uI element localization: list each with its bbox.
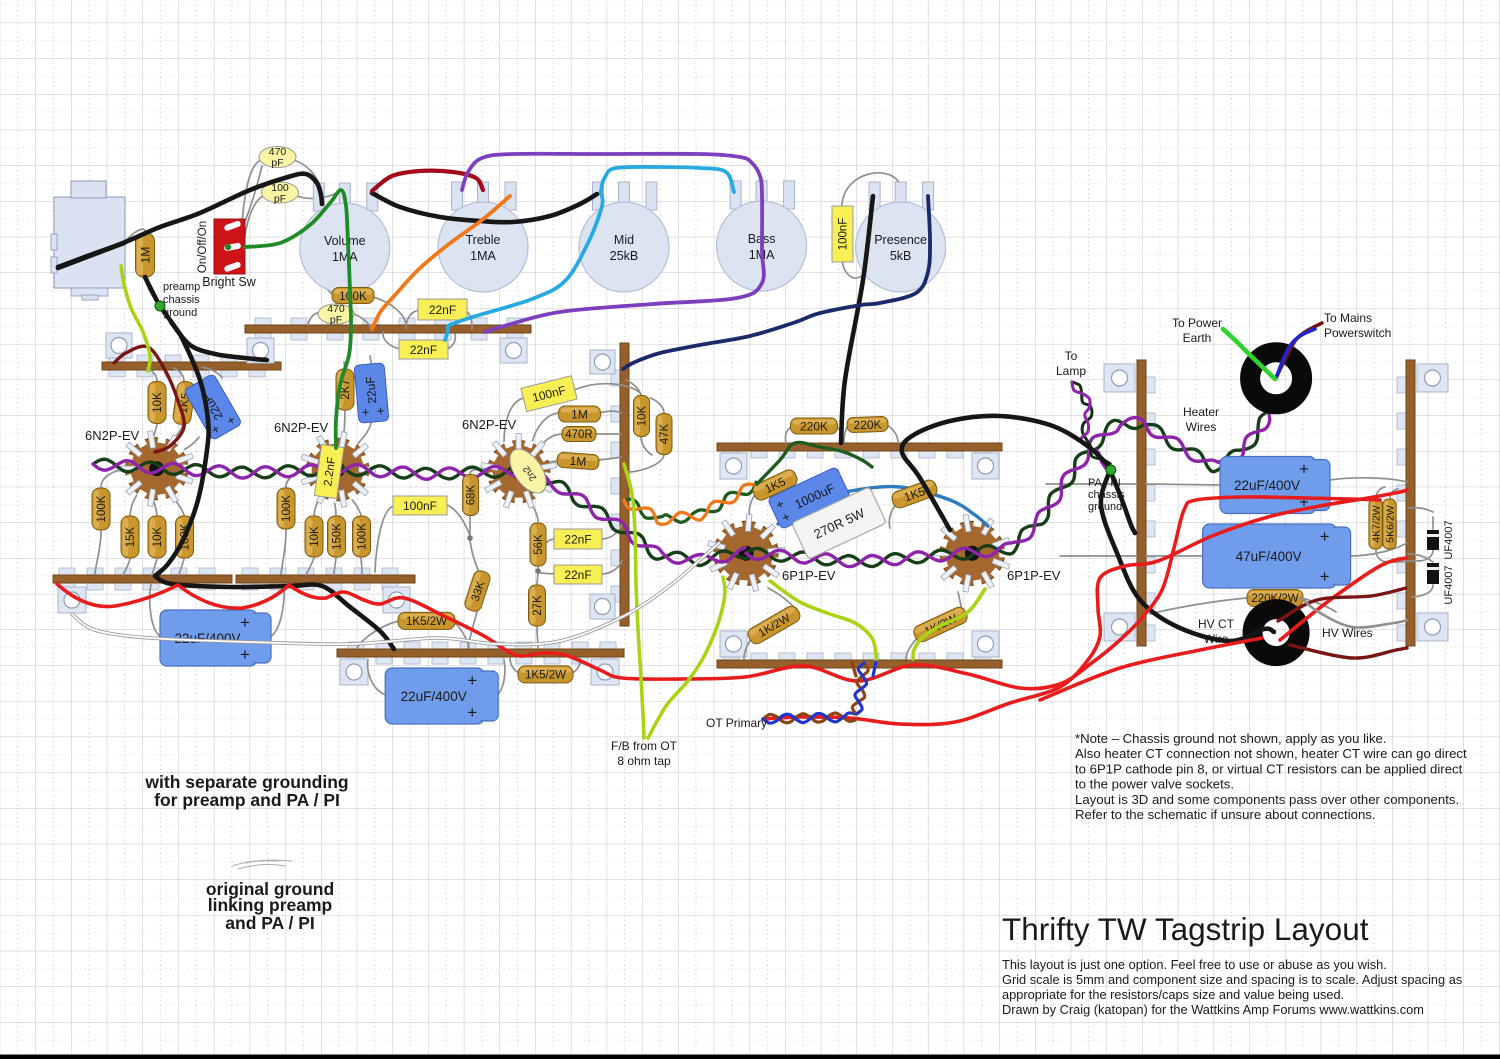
svg-text:F/B from OT: F/B from OT (611, 739, 678, 753)
svg-text:Layout is 3D and some componen: Layout is 3D and some components pass ov… (1075, 792, 1459, 807)
svg-text:To: To (1065, 349, 1078, 363)
svg-text:1K5/2W: 1K5/2W (525, 670, 566, 682)
svg-text:+: + (467, 703, 477, 722)
svg-text:+: + (240, 645, 250, 664)
svg-text:This layout is just one option: This layout is just one option. Feel fre… (1002, 957, 1387, 972)
svg-text:On/Off/On: On/Off/On (197, 221, 209, 273)
svg-text:+: + (1320, 567, 1330, 586)
svg-text:68K: 68K (466, 484, 478, 505)
svg-text:4K7/2W: 4K7/2W (1370, 505, 1382, 542)
svg-text:22nF: 22nF (564, 532, 591, 546)
svg-text:Wires: Wires (1186, 420, 1217, 434)
svg-text:47uF/400V: 47uF/400V (1236, 549, 1302, 564)
svg-text:1K5/2W: 1K5/2W (406, 616, 447, 628)
svg-text:100nF: 100nF (403, 499, 437, 513)
svg-text:To Power: To Power (1172, 316, 1222, 330)
svg-text:pF: pF (271, 157, 283, 169)
svg-text:Heater: Heater (1183, 405, 1219, 419)
svg-text:220K: 220K (853, 417, 882, 432)
svg-text:22nF: 22nF (429, 303, 456, 317)
svg-text:47K: 47K (659, 423, 671, 444)
svg-text:chassis: chassis (163, 294, 200, 306)
svg-text:to 6P1P cathode pin 8, or virt: to 6P1P cathode pin 8, or virtual CT res… (1075, 761, 1463, 776)
svg-text:22uF/400V: 22uF/400V (1234, 478, 1300, 493)
svg-text:1M: 1M (569, 454, 587, 469)
svg-text:1M: 1M (571, 407, 588, 421)
svg-text:Lamp: Lamp (1056, 364, 1086, 378)
svg-text:*Note – Chassis ground not sho: *Note – Chassis ground not shown, apply … (1075, 731, 1387, 746)
svg-text:8 ohm tap: 8 ohm tap (617, 754, 671, 768)
svg-text:Volume: Volume (324, 234, 366, 248)
svg-text:HV CT: HV CT (1198, 617, 1235, 631)
svg-text:and PA / PI: and PA / PI (225, 913, 314, 933)
svg-text:Also heater CT connection not: Also heater CT connection not shown, hea… (1075, 746, 1467, 761)
svg-text:Earth: Earth (1183, 331, 1212, 345)
svg-text:+: + (467, 671, 477, 690)
svg-text:UF4007: UF4007 (1443, 520, 1455, 559)
svg-text:100K: 100K (281, 495, 293, 522)
svg-text:27K: 27K (532, 595, 544, 616)
svg-text:Powerswitch: Powerswitch (1324, 326, 1391, 340)
svg-text:OT Primary: OT Primary (706, 716, 767, 730)
svg-text:pF: pF (330, 314, 342, 326)
svg-text:10K: 10K (152, 392, 164, 413)
svg-text:To Mains: To Mains (1324, 311, 1372, 325)
svg-text:+: + (1320, 527, 1330, 546)
svg-text:ground: ground (163, 307, 197, 319)
svg-text:chassis: chassis (1088, 489, 1125, 501)
svg-text:Grid scale is 5mm and componen: Grid scale is 5mm and component size and… (1002, 972, 1462, 987)
svg-text:1M: 1M (138, 247, 152, 264)
svg-text:preamp: preamp (163, 281, 200, 293)
svg-text:Refer to the schematic if unsu: Refer to the schematic if unsure about c… (1075, 807, 1376, 822)
svg-text:5kB: 5kB (890, 249, 912, 263)
svg-text:pF: pF (274, 193, 286, 205)
svg-text:100K: 100K (96, 495, 108, 522)
svg-text:56K: 56K (533, 534, 545, 555)
svg-text:6N2P-EV: 6N2P-EV (274, 420, 329, 435)
svg-text:PA / PI: PA / PI (1088, 477, 1121, 489)
svg-text:ground: ground (1088, 501, 1122, 513)
svg-text:10K: 10K (152, 526, 164, 547)
svg-text:5K6/2W: 5K6/2W (1384, 505, 1396, 542)
svg-text:22uF/400V: 22uF/400V (401, 689, 467, 704)
svg-text:6N2P-EV: 6N2P-EV (462, 417, 517, 432)
svg-text:to the power valve sockets.: to the power valve sockets. (1075, 777, 1234, 792)
svg-text:10K: 10K (637, 405, 649, 426)
svg-text:Wire: Wire (1204, 632, 1229, 646)
svg-text:25kB: 25kB (610, 249, 639, 263)
svg-text:150K: 150K (332, 523, 344, 550)
svg-text:22nF: 22nF (410, 343, 437, 357)
svg-text:6P1P-EV: 6P1P-EV (782, 568, 836, 583)
svg-text:100nF: 100nF (838, 218, 850, 251)
svg-text:100K: 100K (357, 523, 369, 550)
svg-text:+: + (240, 613, 250, 632)
svg-text:1MA: 1MA (470, 249, 496, 263)
svg-text:15K: 15K (125, 526, 137, 547)
svg-text:with separate grounding: with separate grounding (144, 772, 348, 792)
svg-text:22uF: 22uF (363, 376, 379, 404)
svg-text:Drawn by Craig (katopan) for t: Drawn by Craig (katopan) for the Wattkin… (1002, 1002, 1424, 1017)
svg-text:+: + (361, 404, 370, 420)
svg-text:Treble: Treble (466, 233, 501, 247)
svg-text:+: + (1299, 460, 1309, 479)
svg-text:Thrifty TW Tagstrip Layout: Thrifty TW Tagstrip Layout (1002, 911, 1369, 947)
svg-text:Presence: Presence (874, 233, 927, 247)
svg-text:HV Wires: HV Wires (1322, 626, 1373, 640)
svg-text:linking preamp: linking preamp (208, 895, 332, 915)
svg-text:22nF: 22nF (564, 568, 591, 582)
svg-text:for preamp and PA / PI: for preamp and PA / PI (154, 790, 340, 810)
svg-text:1MA: 1MA (332, 250, 358, 264)
svg-text:appropriate for the resistors: appropriate for the resistors/caps size … (1002, 987, 1344, 1002)
svg-text:Bright Sw: Bright Sw (202, 275, 256, 289)
svg-text:+: + (376, 403, 385, 419)
svg-text:Mid: Mid (614, 233, 634, 247)
svg-text:UF4007: UF4007 (1443, 565, 1455, 604)
svg-text:6P1P-EV: 6P1P-EV (1007, 568, 1061, 583)
svg-text:6N2P-EV: 6N2P-EV (85, 428, 140, 443)
svg-text:100K: 100K (339, 289, 367, 303)
svg-text:220K: 220K (800, 419, 828, 433)
svg-text:470R: 470R (565, 429, 593, 441)
svg-text:10K: 10K (309, 526, 321, 547)
